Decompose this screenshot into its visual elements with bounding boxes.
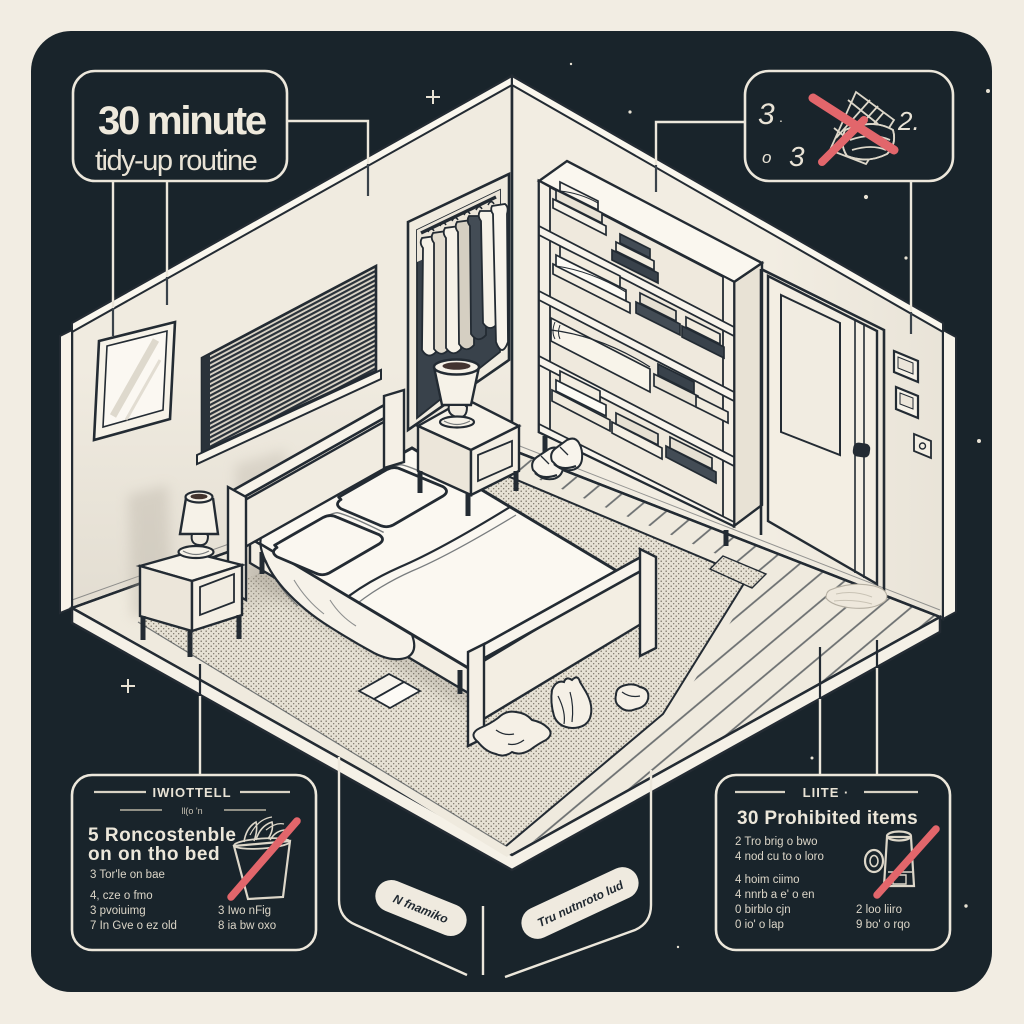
svg-text:3 Iwo nFig: 3 Iwo nFig [218,905,271,917]
svg-text:3: 3 [758,98,775,131]
svg-text:2.: 2. [897,106,920,136]
svg-text:4, cze o fmo: 4, cze o fmo [90,890,153,902]
svg-text:9 bo' o rqo: 9 bo' o rqo [856,919,910,931]
svg-text:5 Roncostenble: 5 Roncostenble [88,825,236,846]
svg-text:0 birblo cjn: 0 birblo cjn [735,904,791,916]
svg-text:3 Tor'le on bae: 3 Tor'le on bae [90,869,165,881]
svg-text:8 ia bw oxo: 8 ia bw oxo [218,920,276,932]
svg-text:LIITE ·: LIITE · [803,785,850,800]
svg-text:on on tho bed: on on tho bed [88,844,220,865]
svg-text:7 In Gve o ez old: 7 In Gve o ez old [90,920,177,932]
svg-text:4 nnrb a e' o en: 4 nnrb a e' o en [735,889,815,901]
svg-text:tidy-up routine: tidy-up routine [95,145,257,177]
svg-text:IWIOTTELL: IWIOTTELL [152,785,231,800]
svg-text:.: . [779,109,783,125]
svg-text:2 Tro brig o bwo: 2 Tro brig o bwo [735,836,817,848]
svg-text:ll(o 'n: ll(o 'n [181,806,202,816]
svg-text:2 loo liiro: 2 loo liiro [856,904,902,916]
svg-text:3 pvoiuimg: 3 pvoiuimg [90,905,146,917]
svg-text:o: o [762,148,771,167]
svg-text:0 io' o lap: 0 io' o lap [735,919,784,931]
svg-text:3: 3 [789,141,805,172]
svg-text:30 minute: 30 minute [98,99,266,143]
svg-text:4 nod cu to o loro: 4 nod cu to o loro [735,851,824,863]
svg-text:30 Prohibited items: 30 Prohibited items [737,808,918,829]
svg-text:4 hoim ciimo: 4 hoim ciimo [735,874,800,886]
